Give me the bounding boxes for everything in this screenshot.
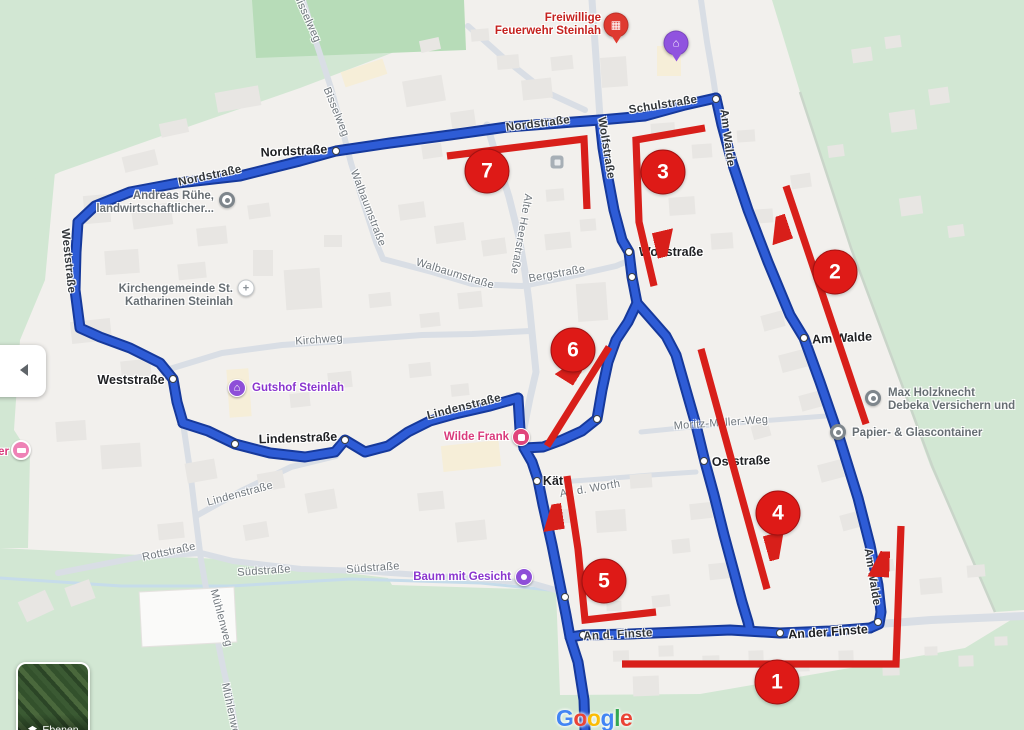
layers-button[interactable]: Ebenen — [16, 662, 90, 730]
side-panel-collapse-button[interactable] — [0, 345, 46, 397]
layers-icon — [27, 725, 38, 730]
chevron-left-icon — [20, 364, 28, 376]
google-logo-letter: e — [620, 705, 632, 730]
google-logo[interactable]: Google — [556, 705, 632, 730]
google-logo-letter: o — [573, 705, 587, 730]
map-canvas[interactable]: BisselwegBisselwegNordstraßeNordstraßeSc… — [0, 0, 1024, 730]
google-logo-letter: o — [587, 705, 601, 730]
layers-button-label: Ebenen — [42, 724, 78, 730]
google-logo-letter: G — [556, 705, 573, 730]
google-logo-letter: g — [601, 705, 615, 730]
